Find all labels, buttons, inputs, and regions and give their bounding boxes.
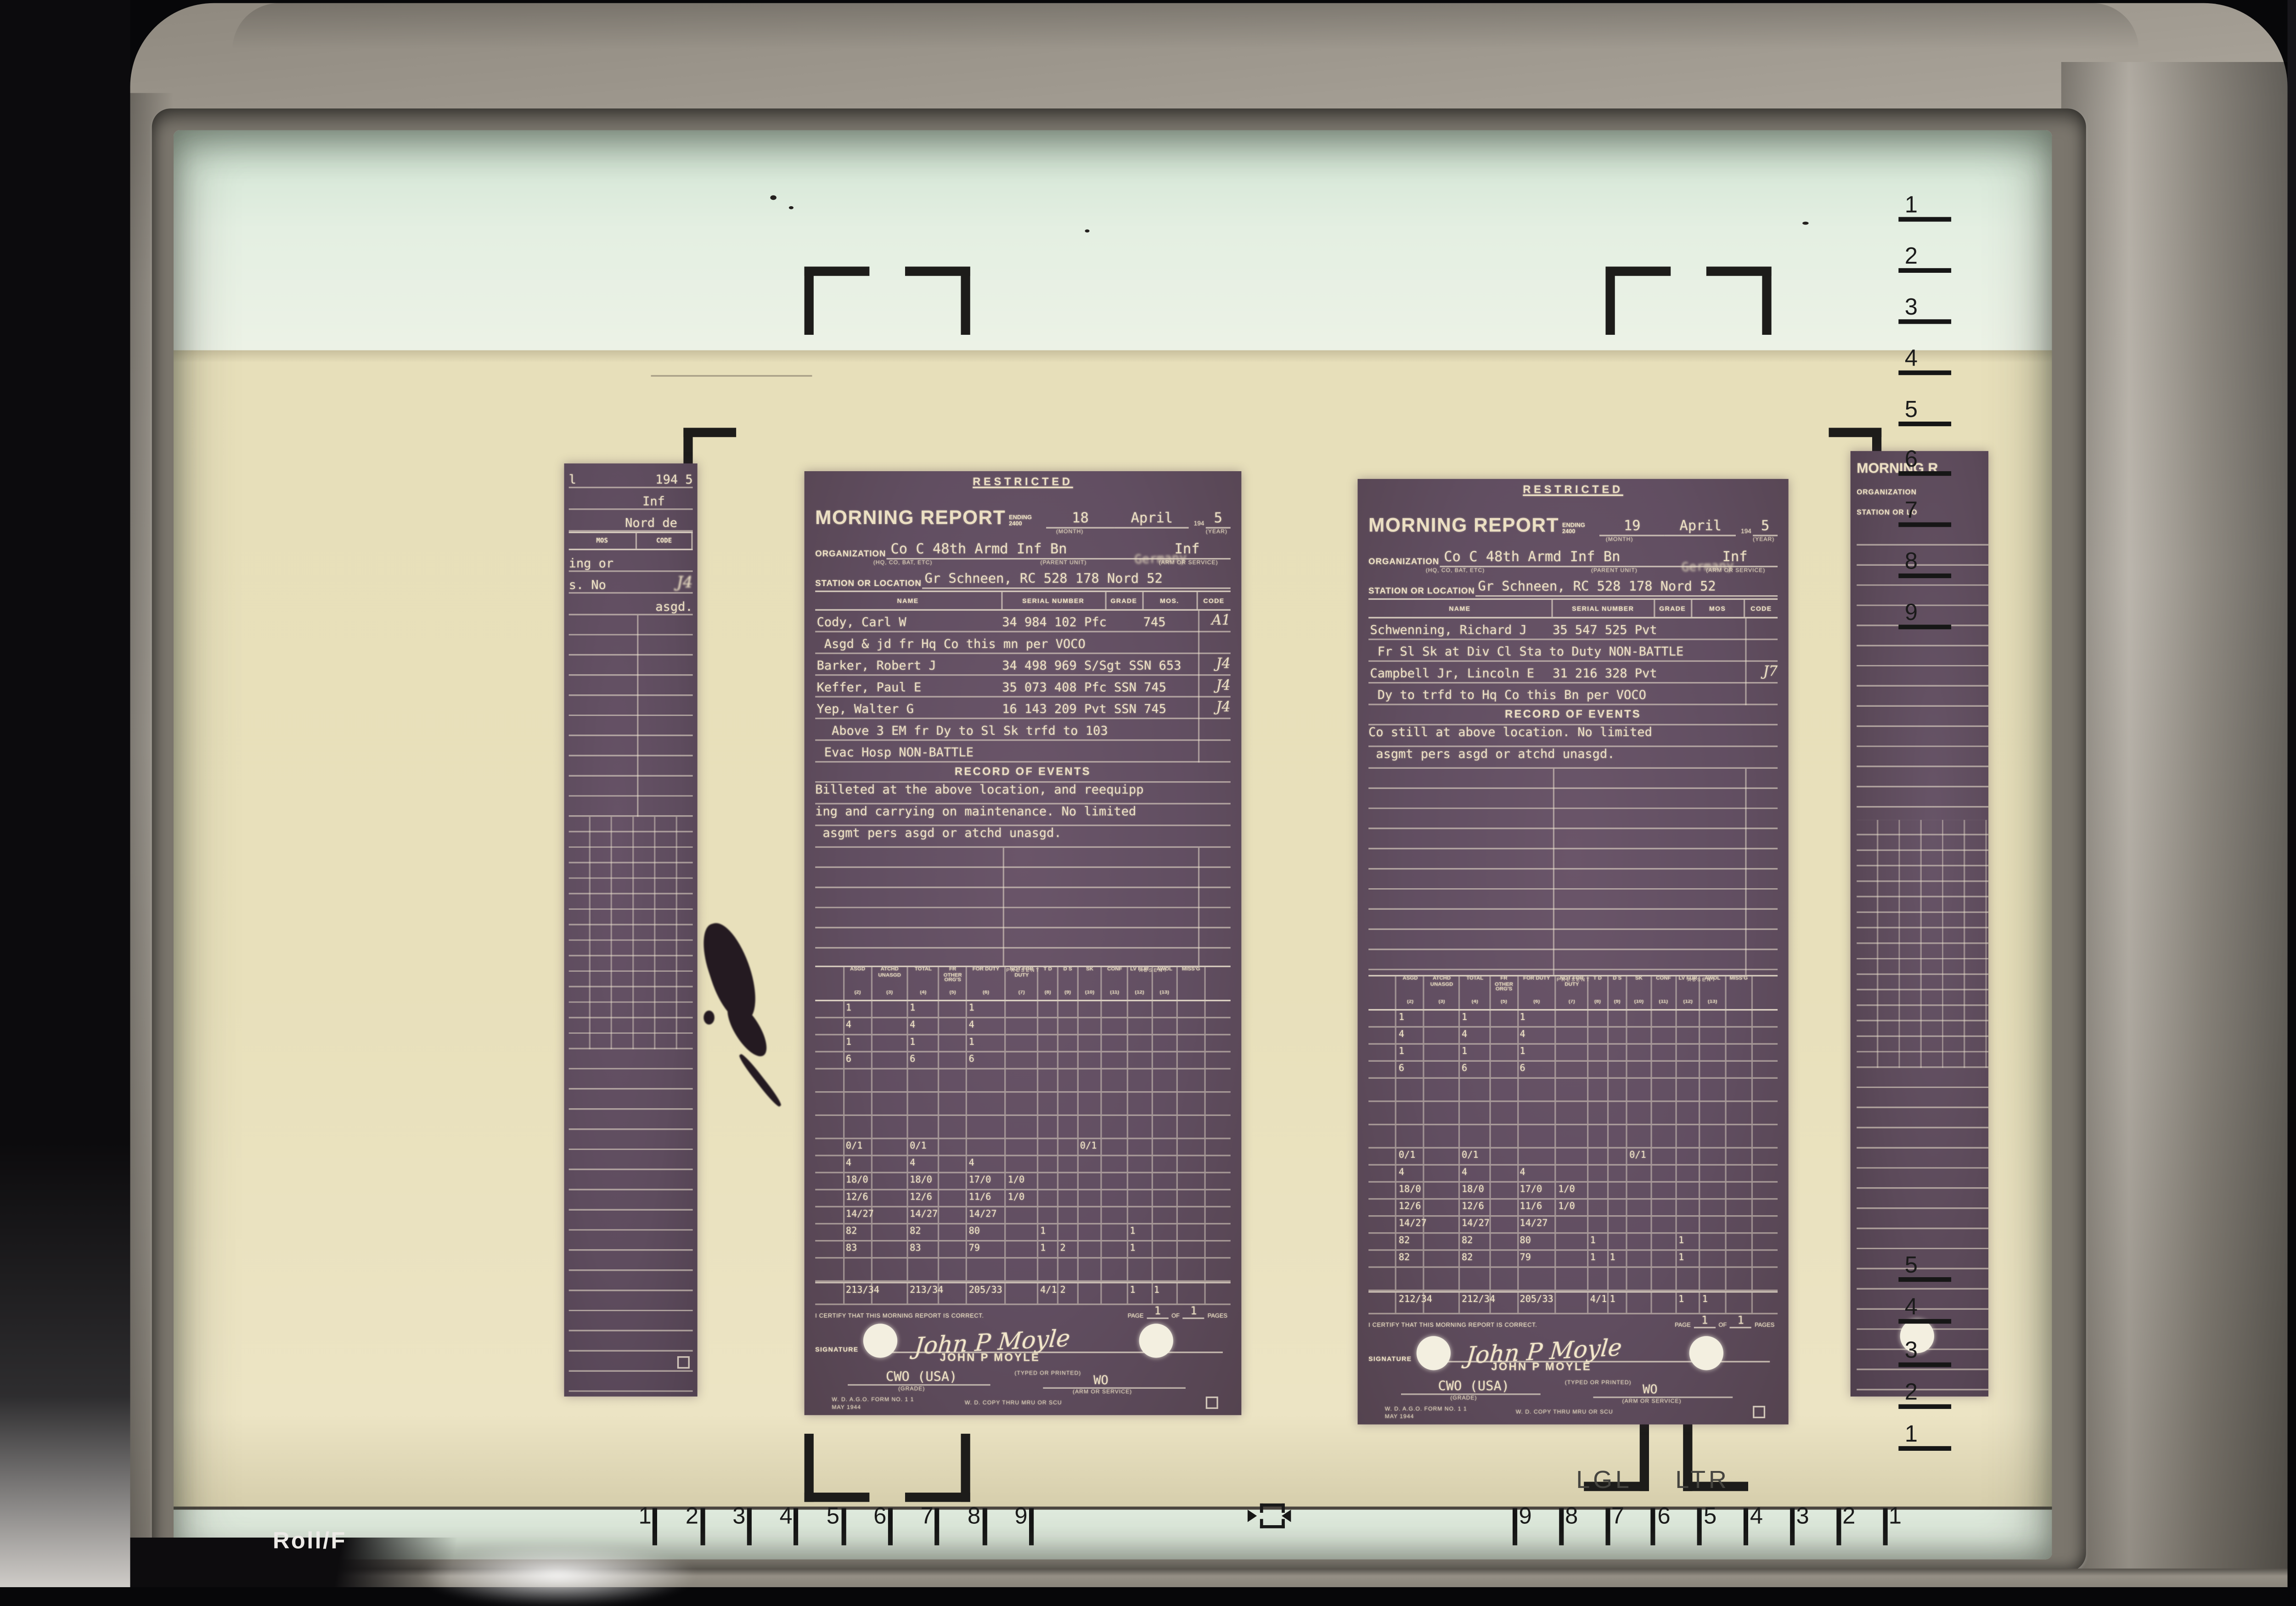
certify-row: I CERTIFY THAT THIS MORNING REPORT IS CO… bbox=[1368, 1314, 1778, 1328]
stats-row: 666 bbox=[815, 1053, 1231, 1070]
roster-row: Keffer, Paul E 35 073 408 Pfc SSN 745 J4 bbox=[815, 676, 1231, 698]
stats-body: 1114441116660/10/10/144418/018/017/01/01… bbox=[815, 1001, 1231, 1305]
morning-report-doc-2: RESTRICTED MORNING REPORT ENDING 2400 19… bbox=[1358, 479, 1789, 1425]
ruler-mark: 2 bbox=[1898, 1382, 1951, 1409]
machine-top-face bbox=[232, 3, 2138, 50]
station-value: Gr Schneen, RC 528 178 Nord 52 bbox=[922, 572, 1231, 589]
film-scratch bbox=[651, 375, 812, 377]
ruler-mark: 4 bbox=[1898, 348, 1951, 374]
event-line: asgmt pers asgd or atchd unasgd. bbox=[815, 826, 1231, 848]
roster-rows: Cody, Carl W 34 984 102 Pfc 745 A1 Asgd … bbox=[815, 611, 1231, 763]
ruler-mark: 1 bbox=[1898, 195, 1951, 221]
ruler-mark: 1 bbox=[639, 1508, 659, 1545]
ruler-mark: 1 bbox=[1881, 1508, 1902, 1545]
stats-row: 838379121 bbox=[815, 1241, 1231, 1258]
doc-fragment: asgd. bbox=[569, 594, 693, 615]
doc-fragment: s. NoJ4 bbox=[569, 572, 693, 593]
blank-ruled-lines bbox=[569, 615, 693, 817]
ruler-mark: 4 bbox=[1898, 1298, 1951, 1324]
ruler-mark: 8 bbox=[968, 1508, 988, 1545]
punch-hole bbox=[1417, 1336, 1451, 1370]
film-ink-blot bbox=[701, 918, 800, 1104]
stats-row bbox=[815, 1070, 1231, 1093]
form-checkbox bbox=[1753, 1406, 1765, 1418]
roster-row: Schwenning, Richard J 35 547 525 Pvt bbox=[1368, 619, 1778, 640]
right-ruler-bottom: 54321 bbox=[1898, 1256, 1951, 1451]
station-value: Gr Schneen, RC 528 178 Nord 52 bbox=[1475, 580, 1778, 597]
report-month: April bbox=[1665, 519, 1737, 536]
registration-mark bbox=[1606, 267, 1671, 335]
registration-mark bbox=[1706, 267, 1772, 335]
doc-fragment-header: MOSCODE bbox=[569, 532, 693, 551]
roster-column-headers: NAMESERIAL NUMBERGRADEMOSCODE bbox=[1368, 598, 1778, 619]
page-counter: PAGE1OF1PAGES bbox=[1125, 1305, 1231, 1319]
doc-fragment: Nord de bbox=[569, 510, 693, 531]
ending-label: ENDING 2400 bbox=[1009, 514, 1043, 527]
ruler-mark: 3 bbox=[732, 1508, 753, 1545]
stats-row: 444 bbox=[1368, 1028, 1778, 1045]
roster-row: Asgd & jd fr Hq Co this mn per VOCO bbox=[815, 632, 1231, 654]
stats-row bbox=[1368, 1268, 1778, 1291]
report-title-row: MORNING REPORT ENDING 2400 18 April 194 … bbox=[815, 495, 1231, 529]
form-footer: W. D. A.G.O. FORM NO. 1 1 MAY 1944 W. D.… bbox=[815, 1390, 1231, 1415]
report-day: 18 bbox=[1046, 512, 1114, 529]
form-checkbox bbox=[1206, 1397, 1218, 1409]
stats-row: 666 bbox=[1368, 1062, 1778, 1079]
stats-row: 14/2714/2714/27 bbox=[1368, 1217, 1778, 1234]
stats-grid-fragment bbox=[1857, 820, 1988, 1068]
dark-right-surround bbox=[2288, 0, 2296, 1587]
station-row: STATION OR LOCATION Gr Schneen, RC 528 1… bbox=[815, 569, 1231, 589]
stats-row: 111 bbox=[1368, 1011, 1778, 1028]
classification-banner: RESTRICTED bbox=[815, 478, 1231, 495]
photo-stage: LGL LTR l194 5 Inf Nord de MOSCODE ing o… bbox=[0, 0, 2296, 1587]
stats-row: 111 bbox=[815, 1036, 1231, 1053]
stats-row bbox=[815, 1116, 1231, 1139]
organization-row: ORGANIZATION Co C 48th Armd Inf Bn Inf G… bbox=[815, 538, 1231, 559]
morning-report-doc-partial-left: l194 5 Inf Nord de MOSCODE ing or s. NoJ… bbox=[564, 463, 698, 1397]
roster-column-headers: NAMESERIAL NUMBERGRADEMOS.CODE bbox=[815, 591, 1231, 611]
stats-row: 14/2714/2714/27 bbox=[815, 1207, 1231, 1224]
organization-row: ORGANIZATION Co C 48th Armd Inf Bn Inf G… bbox=[1368, 546, 1778, 567]
ruler-mark: 9 bbox=[1511, 1508, 1532, 1545]
blank-ruled-lines bbox=[569, 1049, 693, 1397]
ruler-mark: 6 bbox=[1898, 450, 1951, 476]
registration-mark bbox=[805, 1434, 870, 1502]
year-prefix: 194 bbox=[1194, 519, 1204, 527]
roster-rows: Schwenning, Richard J 35 547 525 Pvt Fr … bbox=[1368, 619, 1778, 705]
ruler-mark: 5 bbox=[827, 1508, 847, 1545]
ruler-mark: 8 bbox=[1898, 552, 1951, 578]
stats-column-numbers: (2)(3)(4)(5)(6)(7)(8)(9)(10)(11)(12)(13) bbox=[815, 991, 1231, 1002]
dust-speck bbox=[770, 195, 777, 200]
stats-body: 1114441116660/10/10/144418/018/017/01/01… bbox=[1368, 1011, 1778, 1315]
stats-row: 12/612/611/61/0 bbox=[815, 1190, 1231, 1207]
stats-row: 212/34212/34205/334/1111 bbox=[1368, 1291, 1778, 1314]
ruler-mark: 9 bbox=[1014, 1508, 1035, 1545]
ruler-mark: 7 bbox=[1898, 501, 1951, 527]
stats-row: 18/018/017/01/0 bbox=[815, 1173, 1231, 1190]
stats-row: 18/018/017/01/0 bbox=[1368, 1183, 1778, 1200]
roster-row: Dy to trfd to Hq Co this Bn per VOCO bbox=[1368, 683, 1778, 705]
form-footer: W. D. A.G.O. FORM NO. 1 1 MAY 1944 W. D.… bbox=[1368, 1400, 1778, 1425]
machine-right-shading bbox=[2061, 62, 2288, 1581]
ruler-mark: 7 bbox=[921, 1508, 941, 1545]
ruler-mark: 3 bbox=[1789, 1508, 1809, 1545]
morning-report-doc-1: RESTRICTED MORNING REPORT ENDING 2400 18… bbox=[805, 471, 1242, 1415]
ruler-mark: 7 bbox=[1604, 1508, 1624, 1545]
month-sublabel: (MONTH) bbox=[1056, 529, 1084, 538]
roster-row: Above 3 EM fr Dy to Sl Sk trfd to 103 bbox=[815, 719, 1231, 741]
blank-ruled-lines bbox=[815, 848, 1231, 966]
letter-size-label: LTR bbox=[1675, 1468, 1729, 1496]
registration-mark bbox=[805, 267, 870, 335]
stats-row: 444 bbox=[1368, 1166, 1778, 1183]
station-row: STATION OR LOCATION Gr Schneen, RC 528 1… bbox=[1368, 577, 1778, 597]
legal-size-label: LGL bbox=[1576, 1468, 1632, 1496]
stats-row: 111 bbox=[815, 1001, 1231, 1018]
stats-row: 82828011 bbox=[1368, 1234, 1778, 1251]
roster-row: Evac Hosp NON-BATTLE bbox=[815, 741, 1231, 762]
ruler-mark: 2 bbox=[686, 1508, 706, 1545]
stats-row bbox=[815, 1259, 1231, 1282]
roster-row: Cody, Carl W 34 984 102 Pfc 745 A1 bbox=[815, 611, 1231, 632]
strength-statistics-table: PRESENT ABSENT ASGDATCHD UNASGDTOTALFR O… bbox=[815, 966, 1231, 1305]
doc-fragment: l194 5 bbox=[569, 467, 693, 488]
blank-ruled-lines bbox=[1368, 769, 1778, 975]
certify-row: I CERTIFY THAT THIS MORNING REPORT IS CO… bbox=[815, 1305, 1231, 1319]
stats-row: 828279111 bbox=[1368, 1251, 1778, 1268]
roster-row: Barker, Robert J 34 498 969 S/Sgt SSN 65… bbox=[815, 654, 1231, 676]
doc-fragment: ing or bbox=[569, 550, 693, 572]
stats-row bbox=[1368, 1079, 1778, 1102]
stats-row: 0/10/10/1 bbox=[1368, 1149, 1778, 1166]
stats-row bbox=[1368, 1102, 1778, 1126]
stats-row: 444 bbox=[815, 1018, 1231, 1035]
roster-row: Yep, Walter G 16 143 209 Pvt SSN 745 J4 bbox=[815, 698, 1231, 719]
ruler-mark: 5 bbox=[1696, 1508, 1716, 1545]
bottom-ruler-right: 987654321 bbox=[1511, 1508, 1902, 1545]
punch-hole bbox=[1139, 1324, 1173, 1358]
organization-value: Co C 48th Armd Inf Bn bbox=[886, 542, 1143, 559]
ruler-mark: 3 bbox=[1898, 297, 1951, 323]
ruler-mark: 5 bbox=[1898, 399, 1951, 425]
stats-row: 82828011 bbox=[815, 1224, 1231, 1241]
grade-row: CWO (USA) (TYPED OR PRINTED) WO (GRADE) … bbox=[1368, 1365, 1778, 1399]
roster-row: Fr Sl Sk at Div Cl Sta to Duty NON-BATTL… bbox=[1368, 640, 1778, 662]
punch-hole bbox=[863, 1324, 897, 1358]
grade-row: CWO (USA) (TYPED OR PRINTED) WO (GRADE) … bbox=[815, 1356, 1231, 1390]
right-ruler-top: 123456789 bbox=[1898, 195, 1951, 629]
page-counter: PAGE1OF1PAGES bbox=[1671, 1314, 1778, 1328]
report-title: MORNING REPORT bbox=[1368, 515, 1559, 536]
report-title: MORNING REPORT bbox=[815, 507, 1006, 529]
report-month: April bbox=[1114, 512, 1189, 529]
report-day: 19 bbox=[1599, 519, 1665, 536]
strength-statistics-table: PRESENT ABSENT ASGDATCHD UNASGDTOTALFR O… bbox=[1368, 975, 1778, 1314]
dust-speck bbox=[1802, 222, 1809, 225]
ruler-mark: 5 bbox=[1898, 1256, 1951, 1282]
roll-film-label: Roll/F bbox=[273, 1528, 347, 1555]
stats-row bbox=[1368, 1125, 1778, 1149]
roster-row: Campbell Jr, Lincoln E 31 216 328 Pvt J7 bbox=[1368, 662, 1778, 683]
punch-hole bbox=[1689, 1336, 1723, 1370]
stats-row bbox=[815, 1093, 1231, 1116]
ruler-mark: 6 bbox=[873, 1508, 894, 1545]
stats-grid-fragment bbox=[569, 817, 693, 1049]
projection-screen: LGL LTR l194 5 Inf Nord de MOSCODE ing o… bbox=[174, 130, 2052, 1560]
overstrike-text: Germany bbox=[1682, 558, 1734, 574]
report-year: 5 bbox=[1206, 512, 1231, 529]
ruler-mark: 8 bbox=[1557, 1508, 1578, 1545]
year-prefix: 194 bbox=[1741, 527, 1751, 535]
bottom-ruler-left: 123456789 bbox=[639, 1508, 1035, 1545]
dust-speck bbox=[789, 206, 793, 209]
registration-mark bbox=[905, 1434, 970, 1502]
dark-left-surround bbox=[0, 0, 130, 1587]
stats-row: 0/10/10/1 bbox=[815, 1139, 1231, 1156]
light-leak-glare bbox=[418, 1544, 698, 1606]
year-sublabel: (YEAR) bbox=[1206, 529, 1227, 538]
ruler-mark: 9 bbox=[1898, 603, 1951, 629]
dust-speck bbox=[1085, 230, 1090, 233]
report-year: 5 bbox=[1753, 519, 1778, 536]
report-title-row: MORNING REPORT ENDING 2400 19 April 194 … bbox=[1368, 502, 1778, 536]
stats-row: 444 bbox=[815, 1156, 1231, 1173]
overstrike-text: Germany bbox=[1135, 551, 1187, 567]
film-center-alignment-icon bbox=[1252, 1504, 1286, 1528]
stats-column-numbers: (2)(3)(4)(5)(6)(7)(8)(9)(10)(11)(12)(13) bbox=[1368, 1000, 1778, 1011]
ruler-mark: 1 bbox=[1898, 1425, 1951, 1451]
ruler-mark: 4 bbox=[1742, 1508, 1763, 1545]
ruler-mark: 3 bbox=[1898, 1340, 1951, 1366]
stats-row: 213/34213/34205/334/1211 bbox=[815, 1282, 1231, 1305]
ruler-mark: 2 bbox=[1835, 1508, 1855, 1545]
ruler-mark: 2 bbox=[1898, 246, 1951, 272]
stats-row: 12/612/611/61/0 bbox=[1368, 1200, 1778, 1217]
doc-fragment: Inf bbox=[569, 488, 693, 510]
stats-row: 111 bbox=[1368, 1045, 1778, 1062]
ending-label: ENDING 2400 bbox=[1562, 522, 1596, 535]
ruler-mark: 6 bbox=[1650, 1508, 1671, 1545]
ruler-mark: 4 bbox=[780, 1508, 800, 1545]
registration-mark bbox=[905, 267, 970, 335]
organization-value: Co C 48th Armd Inf Bn bbox=[1439, 550, 1692, 567]
classification-banner: RESTRICTED bbox=[1368, 485, 1778, 502]
